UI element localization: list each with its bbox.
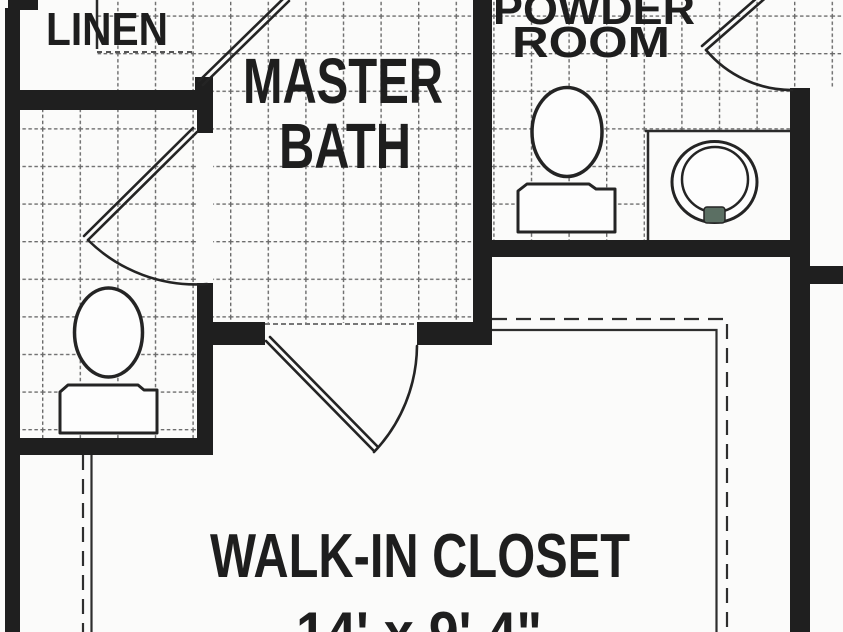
wall-linen-bottom [5,90,213,110]
wall-toilet-room-bottom [5,438,213,455]
wall-bath-powder-divider [473,0,492,345]
powder-room-label-line2: ROOM [512,18,670,67]
hallway-tile-floor [790,0,843,88]
wall-bath-bottom-right [417,322,492,345]
walk-in-closet-label: WALK-IN CLOSET [210,522,630,591]
sink-faucet [704,207,725,223]
floor-plan-page: LINEN MASTER BATH POWDER ROOM WALK-IN CL… [0,0,843,632]
wall-powder-room-bottom [487,240,810,257]
powder-toilet-tank [518,184,615,232]
wall-right-exterior [790,88,810,632]
wall-toilet-room-right-upper [197,90,213,133]
walk-in-closet-dimensions: 14' x 9' 4" [296,600,542,632]
linen-label: LINEN [46,3,168,55]
wall-bath-bottom-left [213,322,265,345]
floor-plan-drawing: LINEN MASTER BATH POWDER ROOM WALK-IN CL… [0,0,843,632]
wall-right-bump-out [810,266,843,284]
toilet-tank [60,385,157,433]
master-bath-label-line2: BATH [279,110,411,182]
toilet-bowl [75,288,143,377]
master-bath-label-line1: MASTER [243,45,443,117]
powder-toilet-bowl [532,88,602,177]
wall-top-left-stub [8,0,38,10]
wall-toilet-room-right-lower [197,283,213,455]
